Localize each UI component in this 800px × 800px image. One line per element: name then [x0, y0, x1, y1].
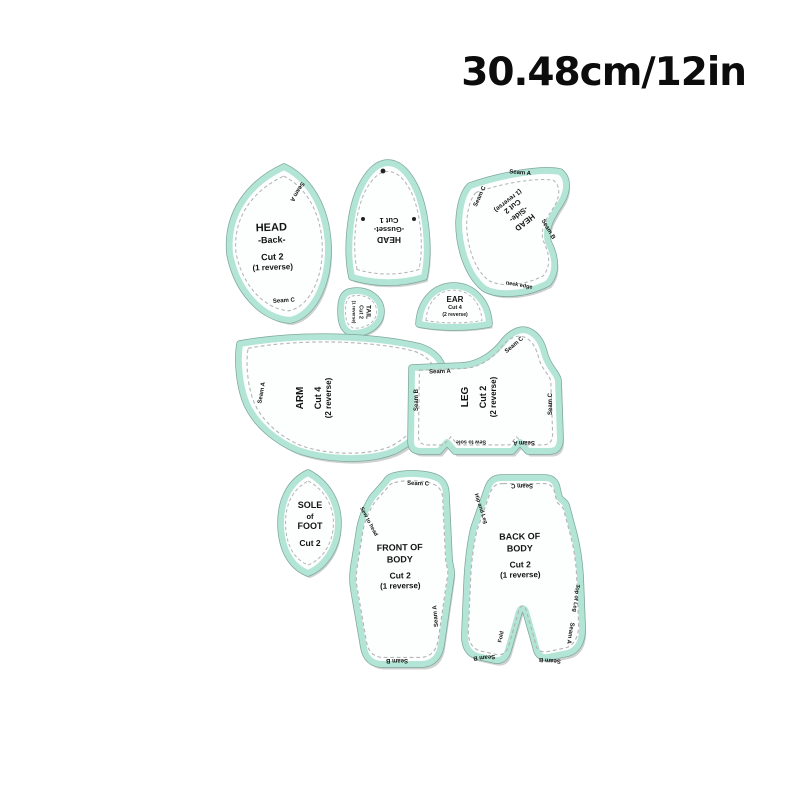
front-body-label: FRONT OF BODY Cut 2 (1 reverse) [377, 542, 424, 592]
seam-label: Seam A [429, 369, 451, 377]
back-body-label: BACK OF BODY Cut 2 (1 reverse) [499, 531, 541, 581]
gusset-mark-dot [412, 217, 416, 221]
head-back-label: HEAD -Back- Cut 2 (1 reverse) [251, 220, 293, 274]
seam-label: Seam C [548, 393, 556, 415]
seam-label: Seam C [407, 481, 429, 489]
tail-label: TAIL Cut 2 (1 reverse) [350, 301, 371, 324]
seam-label: Seam B [386, 655, 408, 663]
pattern-pieces-drawing [0, 0, 800, 800]
ear-label: EAR Cut 4 (2 reverse) [442, 295, 467, 319]
edge-label: Sew to sole [456, 437, 486, 444]
sole-label: SOLE of FOOT Cut 2 [298, 500, 323, 549]
seam-label: Seam A [513, 437, 535, 445]
pattern-sheet: 30.48cm/12in [0, 0, 800, 800]
arm-label: ARM Cut 4 (2 reverse) [295, 378, 335, 418]
gusset-mark-dot [361, 217, 365, 221]
leg-label: LEG Cut 2 (2 reverse) [460, 377, 500, 417]
seam-label: Seam C [511, 480, 533, 488]
gusset-mark-dot [381, 169, 386, 174]
seam-label: Seam B [414, 389, 422, 411]
seam-label: Seam C [273, 297, 295, 306]
head-gusset-label: HEAD -Gusset- Cut 1 [374, 215, 404, 245]
